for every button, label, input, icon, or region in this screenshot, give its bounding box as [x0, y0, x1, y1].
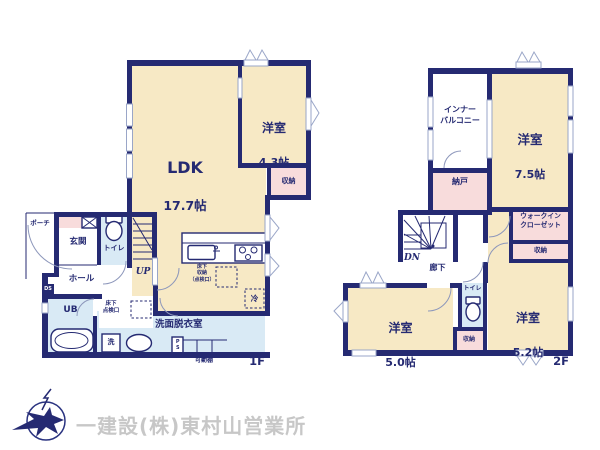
room-bedroom52-entry — [488, 210, 509, 262]
label-ldk: LDK 17.7帖 — [132, 138, 238, 234]
label-bedroom75: 洋室 7.5帖 — [492, 112, 568, 201]
floorplan-canvas: LDK 17.7帖 洋室 4.3帖 収納 ポーチ 玄関 トイレ ホール UP D… — [0, 0, 600, 450]
label-corridor: 廊下 — [415, 263, 460, 273]
label-toilet-1f: トイレ — [101, 244, 127, 253]
label-closet-upper-2f: 収納 — [513, 246, 568, 254]
x-box-cabinet — [82, 217, 97, 228]
label-washer: 洗 — [102, 338, 120, 347]
label-underfloor-access: 床下 点検口 — [95, 301, 127, 314]
label-toilet-2f: トイレ — [458, 285, 487, 293]
label-movable-shelf: 可動棚 — [186, 357, 222, 365]
label-porch: ポーチ — [25, 219, 55, 227]
kitchen-counter — [182, 233, 268, 263]
label-washroom: 洗面脱衣室 — [155, 319, 235, 331]
label-bedroom50: 洋室 5.0帖 — [348, 301, 453, 390]
label-floor2: 2F — [548, 354, 574, 368]
company-name: 一建設(株)東村山営業所 — [76, 410, 306, 439]
label-closet-1f: 収納 — [271, 177, 306, 186]
bird-icon — [12, 407, 64, 437]
label-duct-space: DS — [42, 286, 54, 292]
shoe-cabinet — [59, 217, 82, 228]
label-walk-in-closet: ウォークイン クローゼット — [513, 212, 568, 230]
ldk-name: LDK — [132, 158, 238, 178]
ldk-size: 17.7帖 — [132, 198, 238, 214]
company-logo — [12, 389, 65, 440]
bathtub — [51, 329, 93, 352]
stairs-2f — [404, 216, 446, 249]
label-inner-balcony: インナー バルコニー — [433, 104, 487, 126]
label-storeroom: 納戸 — [433, 177, 487, 187]
vanity-sink — [127, 335, 152, 352]
floorplan-graphics — [0, 0, 600, 450]
label-underfloor-storage: 床下 収納 （点検口） — [188, 264, 216, 283]
label-entrance: 玄関 — [59, 237, 97, 248]
label-fridge: 冷 — [245, 294, 264, 303]
label-closet-lower-2f: 収納 — [455, 336, 483, 344]
kitchen-sink — [188, 246, 215, 260]
toilet-icon-1f — [106, 216, 122, 241]
label-pipe-space: PS — [175, 339, 181, 351]
label-up: UP — [131, 267, 155, 278]
label-unit-bath: UB — [48, 305, 93, 316]
label-floor1: 1F — [244, 354, 270, 368]
label-hall: ホール — [59, 274, 104, 285]
toilet-icon-2f — [466, 297, 480, 321]
stove — [235, 245, 262, 261]
